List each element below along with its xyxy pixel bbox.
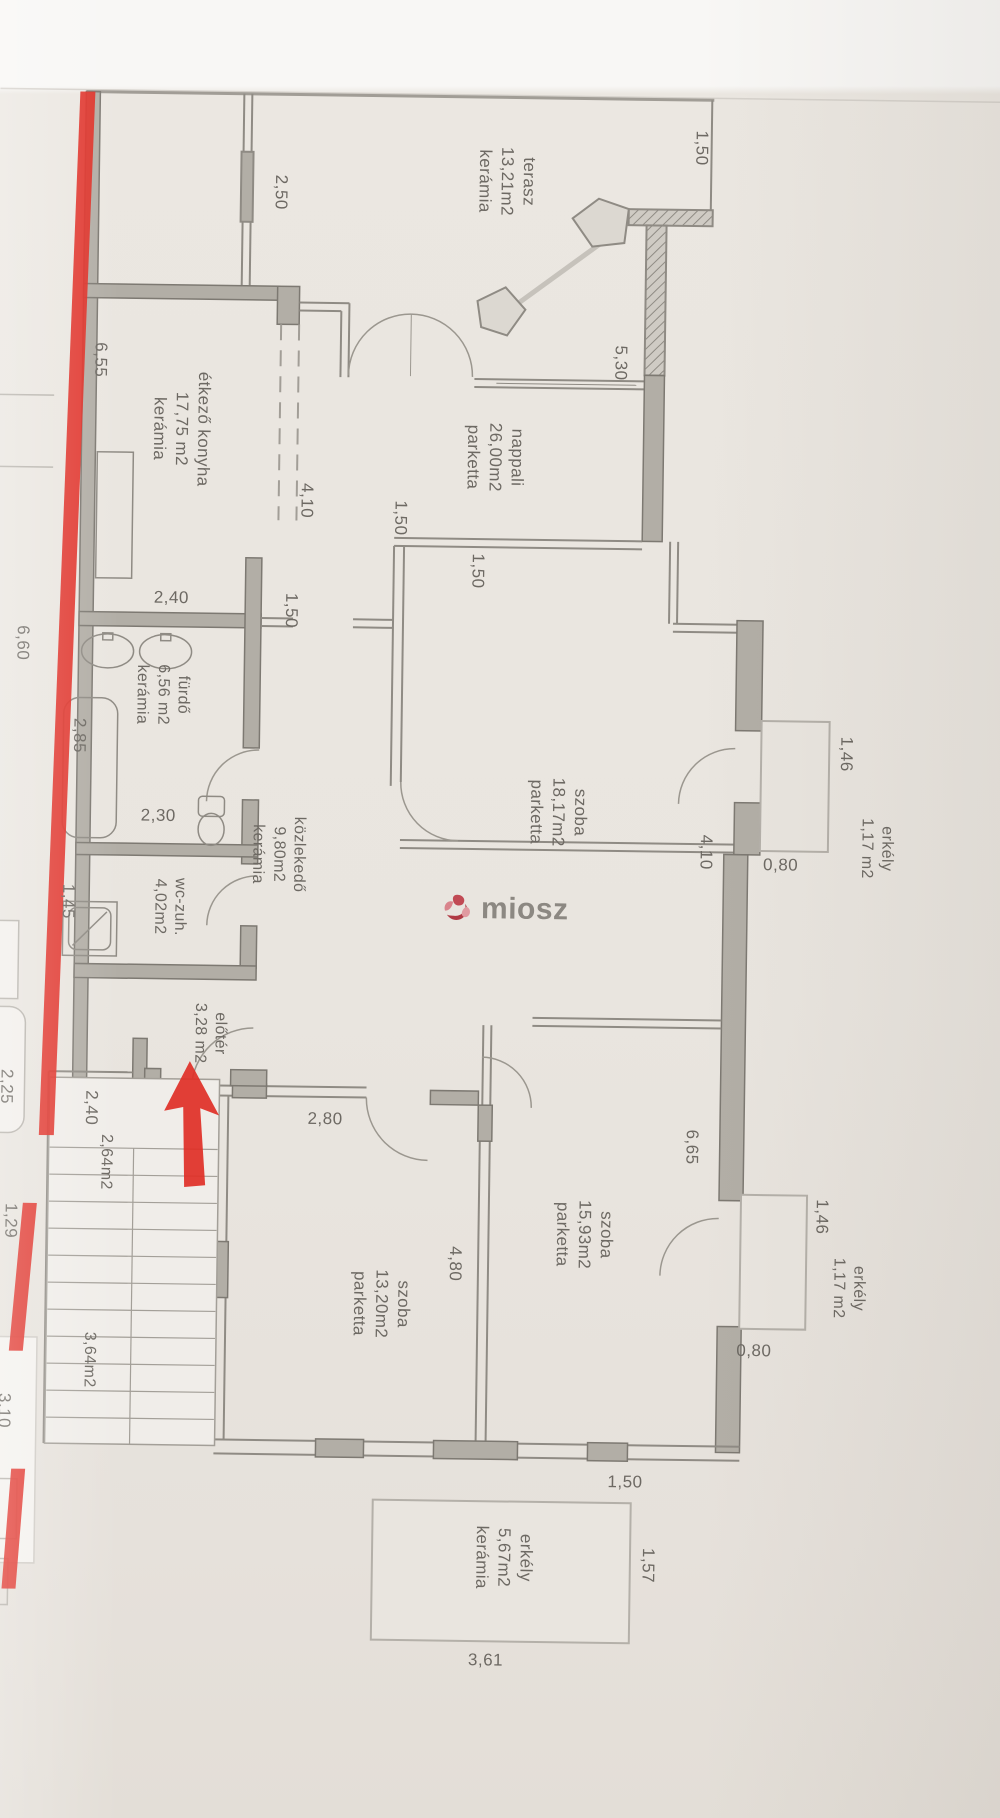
dimension-label: 3,61 xyxy=(468,1649,503,1671)
dimension-label: 1,29 xyxy=(0,1203,22,1238)
dimension-label: 2,80 xyxy=(307,1108,342,1130)
watermark: miosz xyxy=(437,889,569,931)
room-label-eloter: előtér 3,28 m2 xyxy=(188,1003,230,1064)
area-label-2-64: 2,64m2 xyxy=(95,1134,116,1190)
area-label-3-64: 3,64m2 xyxy=(78,1332,99,1388)
watermark-text: miosz xyxy=(481,892,569,927)
room-label-kozlekedo: közlekedő 9,80m2 kerámia xyxy=(247,816,309,893)
dimension-label: 1,50 xyxy=(389,500,411,535)
dimension-label: 1,50 xyxy=(691,130,713,165)
dimension-label: 1,45 xyxy=(57,884,79,919)
dimension-label: 6,60 xyxy=(12,625,34,660)
dimension-label: 2,85 xyxy=(68,718,90,753)
room-label-erkely-3: erkély 5,67m2 kerámia xyxy=(471,1525,537,1589)
dimension-label: 2,40 xyxy=(80,1090,102,1125)
dimension-label: 1,46 xyxy=(835,737,857,772)
dimension-label: 0,80 xyxy=(736,1340,771,1362)
dimension-label: 4,10 xyxy=(296,483,318,518)
dimension-label: 3,10 xyxy=(0,1393,15,1428)
dimension-label: 4,80 xyxy=(444,1246,466,1281)
dimension-label: 6,65 xyxy=(681,1129,703,1164)
room-label-etkezo: étkező konyha 17,75 m2 kerámia xyxy=(148,371,215,487)
room-label-szoba-18: szoba 18,17m2 parketta xyxy=(525,777,591,847)
dimension-label: 0,80 xyxy=(763,854,798,876)
dimension-label: 2,40 xyxy=(154,587,189,609)
room-label-szoba-15: szoba 15,93m2 parketta xyxy=(551,1200,617,1270)
room-label-terasz: terasz 13,21m2 kerámia xyxy=(474,146,540,216)
dimension-label: 1,50 xyxy=(467,553,489,588)
floorplan: terasz 13,21m2 kerámianappali 26,00m2 pa… xyxy=(0,0,1000,1818)
room-label-erkely-2: erkély 1,17 m2 xyxy=(827,1258,869,1319)
dimension-label: 2,30 xyxy=(141,804,176,826)
room-label-szoba-13: szoba 13,20m2 parketta xyxy=(348,1269,414,1339)
floorplan-photo: terasz 13,21m2 kerámianappali 26,00m2 pa… xyxy=(0,0,1000,1818)
room-label-furdo: fürdő 6,56 m2 kerámia xyxy=(131,664,193,725)
room-label-erkely-1: erkély 1,17 m2 xyxy=(855,818,897,879)
dimension-label: 1,46 xyxy=(811,1199,833,1234)
room-label-wc-zuh: wc-zuh. 4,02m2 xyxy=(148,878,190,937)
dimension-label: 5,30 xyxy=(610,345,632,380)
dimension-label: 2,25 xyxy=(0,1069,18,1104)
dimension-label: 2,50 xyxy=(270,175,292,210)
dimension-label: 1,57 xyxy=(637,1548,659,1583)
dimension-label: 1,50 xyxy=(607,1471,642,1493)
dimension-label: 4,10 xyxy=(695,835,717,870)
dimension-label: 1,50 xyxy=(280,593,302,628)
miosz-logo-icon xyxy=(437,889,478,930)
room-label-nappali: nappali 26,00m2 parketta xyxy=(462,422,528,492)
dimension-label: 6,55 xyxy=(90,342,112,377)
